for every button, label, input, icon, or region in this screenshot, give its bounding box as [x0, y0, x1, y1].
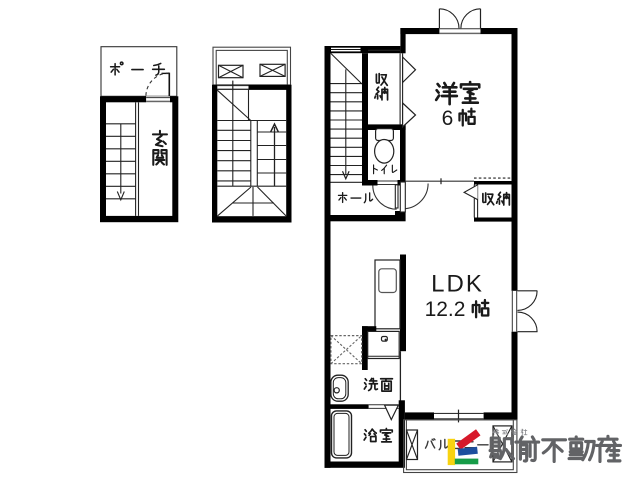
svg-text:12.2: 12.2 [425, 298, 466, 321]
svg-text:6: 6 [442, 107, 454, 130]
svg-text:LDK: LDK [431, 271, 484, 298]
